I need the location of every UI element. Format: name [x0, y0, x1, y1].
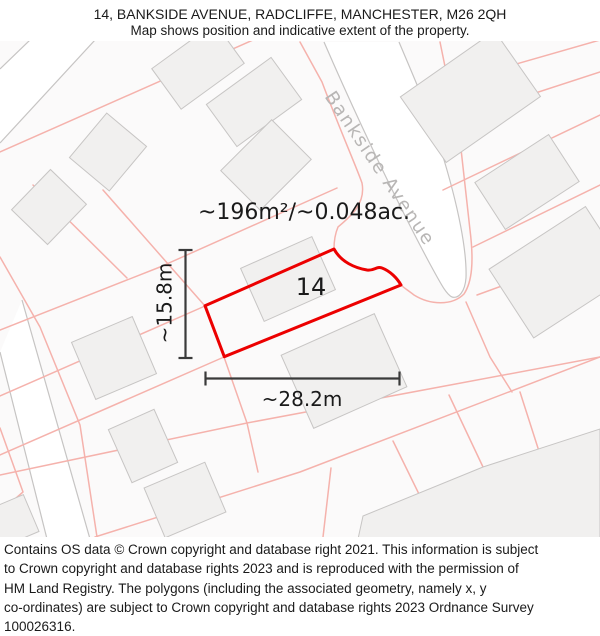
plot-number-label: 14 [296, 273, 327, 301]
copyright-line: co-ordinates) are subject to Crown copyr… [4, 598, 598, 617]
copyright-line: Contains OS data © Crown copyright and d… [4, 540, 598, 559]
copyright-line: 100026316. [4, 617, 598, 636]
area-label: ~196m²/~0.048ac. [198, 200, 410, 225]
copyright-line: HM Land Registry. The polygons (includin… [4, 579, 598, 598]
page-title: 14, BANKSIDE AVENUE, RADCLIFFE, MANCHEST… [0, 0, 600, 23]
copyright-notice: Contains OS data © Crown copyright and d… [4, 540, 598, 636]
width-dimension-label: ~28.2m [262, 387, 343, 411]
height-dimension-label: ~15.8m [153, 263, 177, 344]
copyright-line: to Crown copyright and database rights 2… [4, 559, 598, 578]
page-header: 14, BANKSIDE AVENUE, RADCLIFFE, MANCHEST… [0, 0, 600, 39]
page-subtitle: Map shows position and indicative extent… [0, 23, 600, 39]
property-map: Bankside Avenue ~196m²/~0.048ac. 14 ~28.… [0, 0, 600, 625]
